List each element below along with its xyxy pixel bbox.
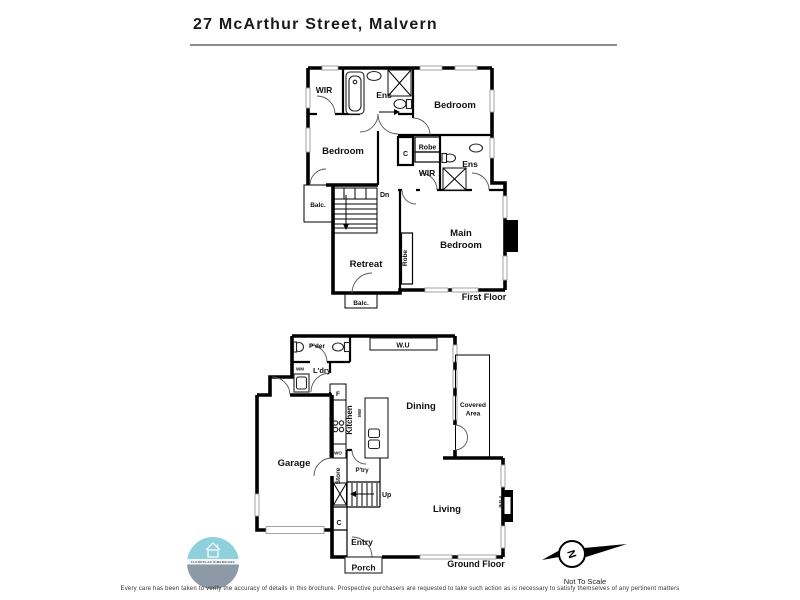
- island-bench: [365, 398, 388, 458]
- room-label-wir-top: WIR: [316, 85, 333, 95]
- store-brace: [334, 483, 347, 505]
- room-label-fridge: F: [336, 391, 340, 398]
- room-label-living: Living: [433, 504, 461, 515]
- room-label-wall-oven: WO: [334, 451, 342, 456]
- room-label-closet-gf: C: [336, 520, 341, 527]
- stairs-up-label: Up: [382, 492, 391, 499]
- compass-needle-east: [584, 544, 627, 557]
- room-label-store: Store: [335, 467, 342, 484]
- room-label-pantry: P'try: [355, 468, 369, 474]
- bay-window: [505, 220, 518, 252]
- ground-floor-plan: P'der W.U WM L'dry F Kitchen MW Dining C…: [250, 328, 520, 578]
- room-label-robe-tall: Robe: [402, 249, 409, 266]
- room-label-ens-top: Ens: [376, 90, 392, 100]
- room-label-garage: Garage: [278, 458, 311, 469]
- stairs-down: [333, 188, 377, 233]
- compass: N: [535, 532, 635, 578]
- washing-machine-icon: [294, 374, 309, 392]
- room-label-porch: Porch: [351, 563, 375, 573]
- room-label-fire: Fire: [497, 496, 504, 508]
- room-label-main-bedroom-line2: Bedroom: [440, 240, 482, 251]
- bathtub-icon: [346, 72, 364, 114]
- room-label-dining: Dining: [406, 401, 436, 412]
- room-label-main-bedroom-line1: Main: [450, 228, 472, 239]
- room-label-balc-left: Balc.: [310, 202, 326, 209]
- room-label-covered-line2: Area: [466, 411, 481, 418]
- room-label-bedroom-left: Bedroom: [322, 146, 364, 157]
- room-label-wir-mid: WIR: [419, 168, 436, 178]
- room-label-retreat: Retreat: [350, 259, 384, 270]
- room-label-powder: P'der: [309, 343, 325, 350]
- stairs-dn-label: Dn: [380, 192, 389, 199]
- room-label-entry: Entry: [351, 537, 373, 547]
- first-floor-plan: WIR Ens Bedroom Bedroom C Robe WIR Ens M…: [293, 58, 537, 313]
- room-label-robe-small: Robe: [419, 145, 437, 152]
- ground-floor-title: Ground Floor: [447, 559, 505, 569]
- not-to-scale-label: Not To Scale: [535, 577, 635, 586]
- first-floor-labels: WIR Ens Bedroom Bedroom C Robe WIR Ens M…: [310, 85, 507, 307]
- sink-icon-powder: [294, 342, 304, 352]
- garage-door: [266, 527, 324, 534]
- room-label-kitchen: Kitchen: [345, 405, 354, 434]
- room-label-washing-machine: WM: [296, 367, 304, 372]
- toilet-icon-ens-mid: [442, 154, 456, 163]
- room-label-ens-mid: Ens: [462, 159, 478, 169]
- page-title: 27 McArthur Street, Malvern: [193, 16, 438, 34]
- sink-icon-ens-top: [367, 72, 381, 81]
- hall-arrow: [379, 109, 400, 115]
- room-label-bedroom-right: Bedroom: [434, 100, 476, 111]
- stairs-up: [350, 483, 377, 506]
- room-label-balc-bottom: Balc.: [353, 300, 369, 307]
- company-logo: FLOORPLAN DIMENSIONS: [186, 536, 240, 590]
- title-divider: [190, 44, 617, 46]
- shower-icon-ens-mid: [443, 168, 466, 190]
- room-label-microwave: MW: [357, 408, 362, 417]
- disclaimer-text: Every care has been taken to verify the …: [0, 586, 800, 592]
- room-label-closet: C: [403, 151, 408, 158]
- room-label-laundry: L'dry: [313, 366, 332, 375]
- toilet-icon-ens-top: [394, 100, 412, 109]
- first-floor-title: First Floor: [462, 292, 507, 302]
- logo-text: FLOORPLAN DIMENSIONS: [191, 560, 235, 564]
- room-label-covered-line1: Covered: [460, 402, 486, 409]
- floorplan-page: 27 McArthur Street, Malvern: [0, 0, 800, 600]
- toilet-icon-powder: [333, 343, 350, 352]
- room-label-wall-unit: W.U: [396, 343, 409, 350]
- sink-icon-ens-mid: [470, 144, 483, 152]
- compass-needle-west: [542, 550, 560, 560]
